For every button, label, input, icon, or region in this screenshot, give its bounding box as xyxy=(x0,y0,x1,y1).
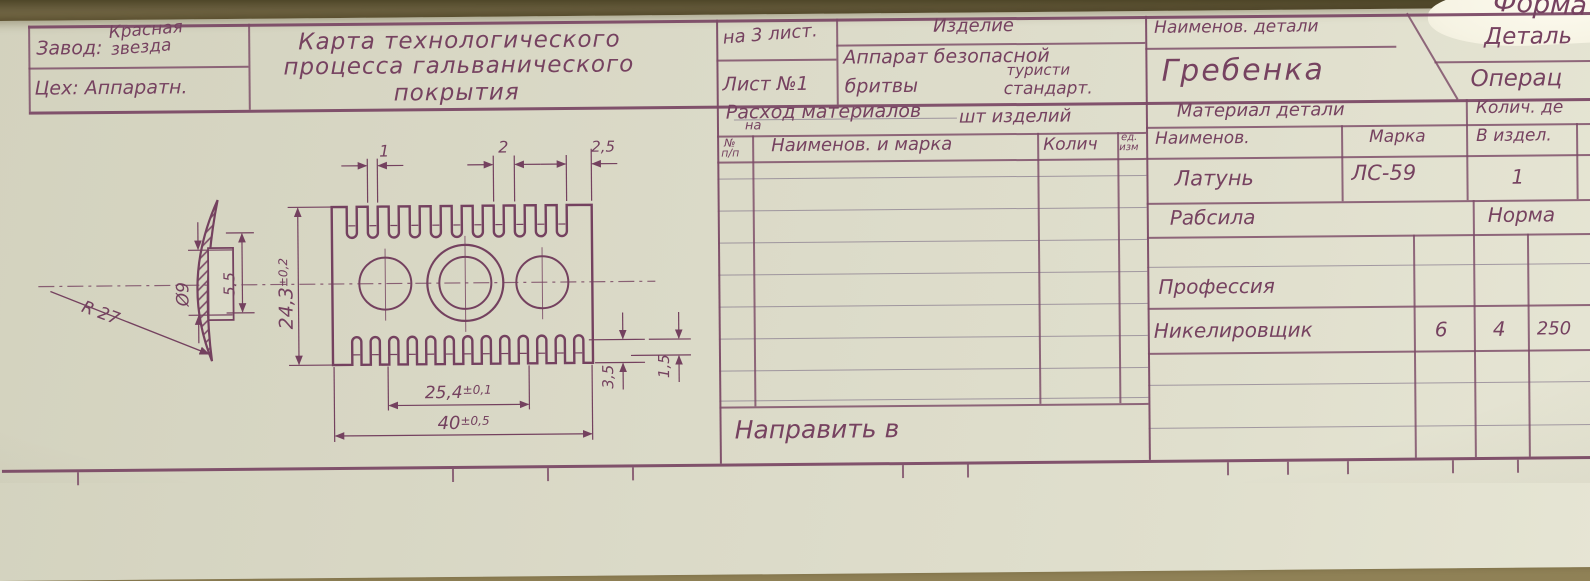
sheets-total: на 3 лист. xyxy=(722,22,818,48)
col-qty-header: Колич xyxy=(1043,136,1098,154)
product-name: бритвы xyxy=(845,77,919,98)
table-line xyxy=(1413,235,1417,458)
form-number-label: Форма xyxy=(1493,0,1588,21)
table-line xyxy=(1148,304,1590,310)
materials-table-title-sub: на xyxy=(745,119,762,133)
table-line xyxy=(1117,132,1121,403)
table-line xyxy=(1146,154,1590,160)
labor-value-b: 4 xyxy=(1493,319,1506,340)
table-line xyxy=(718,271,1147,276)
material-name-value: Латунь xyxy=(1174,167,1254,190)
table-line xyxy=(1452,460,1454,473)
table-line xyxy=(719,303,1148,308)
table-line xyxy=(902,465,904,478)
table-line xyxy=(1473,200,1477,457)
slot-width-dim xyxy=(341,158,403,203)
labor-value-c: 250 xyxy=(1537,320,1572,339)
material-name-header: Наименов. xyxy=(1155,130,1250,149)
dim-foot-text: 1,5 xyxy=(655,354,673,378)
norm-label: Норма xyxy=(1488,204,1556,226)
process-card: ФормаЗавод:КраснаязвездаЦех: Аппаратн.Ка… xyxy=(0,0,1590,500)
table-line xyxy=(719,335,1148,340)
table-line xyxy=(452,469,454,482)
table-line xyxy=(28,66,248,70)
table-line xyxy=(1037,133,1041,404)
dim-slot-width-text: 1 xyxy=(379,142,389,161)
table-line xyxy=(718,239,1147,244)
part-name-label: Наименов. детали xyxy=(1154,18,1318,37)
total-width-dim xyxy=(334,365,593,442)
table-line xyxy=(248,24,251,110)
col-unit-header: изм xyxy=(1119,143,1138,154)
height-dim xyxy=(288,207,332,365)
part-name: Гребенка xyxy=(1161,54,1325,87)
table-line xyxy=(1227,462,1229,475)
table-line xyxy=(1466,99,1469,200)
dim-pitch-text: 2 xyxy=(498,137,508,156)
center-line xyxy=(38,281,655,286)
profession-value: Никелировщик xyxy=(1154,319,1313,341)
dim-hole-text: Ø9 xyxy=(173,282,193,307)
material-qty-value: 1 xyxy=(1511,167,1524,188)
table-line xyxy=(1341,125,1344,201)
table-line xyxy=(1147,263,1590,268)
factory-label: Завод: xyxy=(36,39,102,60)
table-line xyxy=(1149,424,1590,429)
materials-table-units: шт изделий xyxy=(959,108,1072,128)
table-line xyxy=(1147,233,1590,239)
table-line xyxy=(547,468,549,481)
dim-radius-text: R 27 xyxy=(79,297,123,329)
table-line xyxy=(1148,349,1590,355)
dim-height-text: 24,3±0,2 xyxy=(275,258,298,330)
route-to-label: Направить в xyxy=(735,416,900,444)
table-line xyxy=(719,403,1148,409)
material-header: Материал детали xyxy=(1177,101,1345,121)
table-line xyxy=(1287,462,1289,475)
material-qty-header: Колич. де xyxy=(1476,99,1564,118)
factory-value: звезда xyxy=(110,37,172,60)
profession-label: Профессия xyxy=(1158,276,1275,298)
product-label: Изделие xyxy=(933,17,1014,37)
col-name-header: Наименов. и марка xyxy=(771,136,952,156)
table-line xyxy=(716,59,836,62)
col-num-header: п/п xyxy=(721,147,739,159)
dim-inner-text: 25,4±0,1 xyxy=(425,383,492,404)
pitch-dim xyxy=(467,155,540,202)
card-title: процесса гальванического xyxy=(283,52,634,79)
operation-column-label: Операц xyxy=(1470,66,1562,91)
card-title: Карта технологического xyxy=(298,28,621,55)
table-line xyxy=(717,158,1146,164)
product-name: туристи xyxy=(1006,63,1070,79)
table-line xyxy=(1517,460,1519,473)
card-title: покрытия xyxy=(394,80,520,105)
table-line xyxy=(719,367,1148,372)
table-line xyxy=(836,19,839,105)
table-line xyxy=(718,207,1147,212)
labor-grade-value: 6 xyxy=(1435,319,1448,340)
table-line xyxy=(719,397,1148,402)
table-line xyxy=(1527,234,1531,457)
shop-label: Цех: Аппаратн. xyxy=(35,78,188,99)
dim-margin-text: 2,5 xyxy=(591,138,615,156)
table-line xyxy=(967,464,969,477)
table-line xyxy=(752,135,756,406)
detail-column-label: Деталь xyxy=(1484,24,1572,49)
table-line xyxy=(77,472,79,485)
material-inproduct-header: В издел. xyxy=(1476,127,1552,146)
table-line xyxy=(1434,60,1590,63)
dim-boss-text: 5,5 xyxy=(220,272,238,296)
table-line xyxy=(1145,46,1396,50)
dim-width-text: 40±0,5 xyxy=(437,413,489,434)
material-grade-header: Марка xyxy=(1369,128,1426,146)
sheet-number: Лист №1 xyxy=(723,75,809,96)
dim-teeth-h-text: 3,5 xyxy=(599,365,617,389)
material-grade-value: ЛС-59 xyxy=(1351,162,1416,185)
table-line-slanted xyxy=(1406,13,1458,100)
table-line xyxy=(28,26,31,112)
margin-dim xyxy=(540,149,617,202)
labor-section-label: Рабсила xyxy=(1170,207,1256,229)
part-drawing: R 27 Ø9 5,5 24,3±0,2 1 2 2,5 25,4±0,1 40… xyxy=(29,106,722,467)
table-line xyxy=(632,467,634,480)
product-name: стандарт. xyxy=(1004,80,1093,99)
table-line xyxy=(717,175,1146,180)
table-line xyxy=(1148,381,1590,386)
table-line xyxy=(1347,461,1349,474)
comb-outline xyxy=(332,205,593,365)
table-line xyxy=(1576,123,1579,199)
